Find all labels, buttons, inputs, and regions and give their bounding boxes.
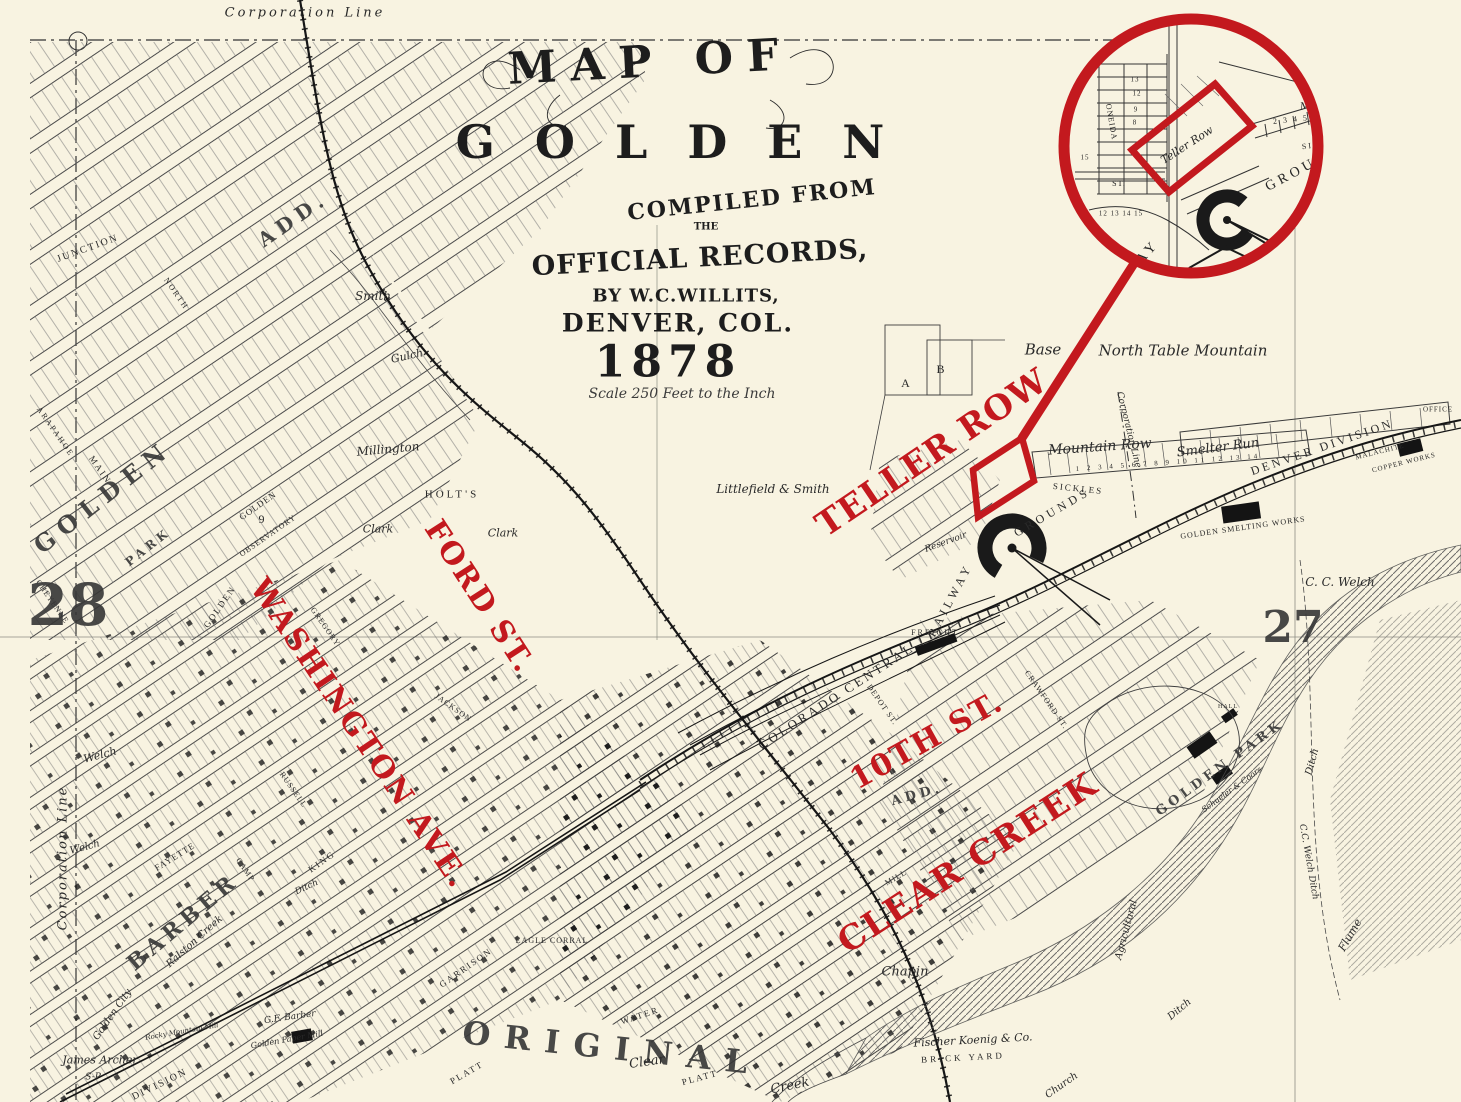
map-label: DENVER DIVISION bbox=[1249, 417, 1395, 477]
map-label: ORIGINAL bbox=[461, 1016, 763, 1079]
map-label: OBSERVATORY bbox=[238, 514, 297, 559]
map-label: SICKLES bbox=[1052, 482, 1103, 496]
inset-label: ST. bbox=[1112, 180, 1126, 188]
map-label: FAYETTE bbox=[153, 841, 196, 873]
map-label: GROUNDS bbox=[1012, 485, 1092, 538]
map-label: ADD. bbox=[254, 188, 331, 251]
map-label: Schueler & Coors bbox=[1201, 766, 1264, 815]
title-the: THE bbox=[694, 222, 719, 233]
red-annotation-label: CLEAR CREEK bbox=[832, 766, 1104, 959]
map-label: Smith bbox=[355, 290, 391, 302]
inset-label: 8 bbox=[1133, 120, 1138, 127]
map-label: PARK bbox=[123, 526, 173, 569]
map-label: GOLDEN PARK bbox=[1154, 717, 1286, 818]
map-label: G.F. Barber bbox=[264, 1010, 317, 1026]
map-label: Mountain Row bbox=[1048, 436, 1152, 457]
map-label: BRICK YARD bbox=[921, 1051, 1005, 1064]
map-label: GOLDEN bbox=[202, 584, 237, 629]
map-label: ARAPAHOE bbox=[35, 406, 75, 459]
map-label: MAIN bbox=[87, 454, 113, 485]
map-label: GARRISON bbox=[438, 947, 494, 990]
inset-label: SICKLES bbox=[1301, 137, 1313, 151]
map-label: A bbox=[901, 377, 911, 389]
map-label: KING bbox=[307, 850, 337, 875]
map-label: Base bbox=[1025, 343, 1062, 358]
magnifier-inset: Teller RowONEIDAST.RAILWAYGROUNDSSICKLES… bbox=[1069, 24, 1313, 268]
map-label: Fischer Koenig & Co. bbox=[913, 1031, 1033, 1048]
map-label: Millington bbox=[356, 440, 420, 457]
map-label: CHEYENNE bbox=[34, 579, 70, 625]
inset-label: Teller Row bbox=[1159, 124, 1215, 166]
map-label: Golden City bbox=[92, 988, 134, 1043]
title-records: OFFICIAL RECORDS, bbox=[531, 234, 869, 283]
map-label: Flume bbox=[1336, 917, 1363, 953]
map-label: Corporation Line bbox=[57, 786, 70, 931]
map-label: MALACHITE bbox=[1355, 443, 1405, 462]
map-label: Church bbox=[1044, 1071, 1080, 1101]
teller-row-highlight-box bbox=[973, 438, 1034, 517]
map-label: RAILWAY bbox=[926, 561, 975, 638]
map-label: Corporation Line bbox=[225, 7, 386, 20]
red-annotation-label: TELLER ROW bbox=[810, 363, 1054, 543]
map-label: FREIGHT bbox=[911, 629, 959, 637]
map-label: Ralston Creek bbox=[165, 914, 225, 970]
inset-label: 15 bbox=[1081, 155, 1090, 162]
map-label: Ditch bbox=[1305, 748, 1322, 777]
map-label: Smelter Run bbox=[1176, 436, 1260, 459]
map-label: GOLDEN SMELTING WORKS bbox=[1180, 515, 1306, 541]
map-label: Corporation Line bbox=[1114, 391, 1142, 469]
title-author: BY W.C.WILLITS, bbox=[592, 286, 779, 307]
map-label: Reservoir bbox=[924, 531, 968, 555]
map-label: COPPER WORKS bbox=[1371, 452, 1436, 475]
map-label: GOLDEN bbox=[238, 490, 278, 522]
map-label: Agricultural bbox=[1114, 899, 1140, 961]
inset-label: Mountain Row bbox=[1300, 95, 1313, 113]
map-label: Ditch bbox=[294, 879, 320, 898]
inset-labels-layer: Teller RowONEIDAST.RAILWAYGROUNDSSICKLES… bbox=[1069, 24, 1313, 268]
map-label: COLORADO CENTRAL bbox=[756, 641, 917, 752]
inset-label: RAILWAY bbox=[1092, 238, 1163, 268]
map-label: JACKSON bbox=[433, 692, 473, 723]
map-label: WATER bbox=[620, 1006, 661, 1027]
inset-label: 9 bbox=[1134, 107, 1139, 114]
title-place: DENVER, COL. bbox=[562, 309, 794, 338]
map-label: Golden Paper Mill bbox=[250, 1030, 323, 1051]
map-label: 28 bbox=[28, 576, 109, 634]
map-label: Chapin bbox=[882, 966, 929, 979]
map-label: ADD. bbox=[890, 782, 944, 808]
title-scale: Scale 250 Feet to the Inch bbox=[588, 386, 775, 402]
red-annotation-label: FORD ST. bbox=[419, 515, 540, 678]
map-label: NORTH bbox=[162, 277, 190, 312]
inset-label: 2 3 4 5 bbox=[1273, 114, 1310, 126]
map-label: GOLDEN bbox=[30, 436, 177, 558]
map-label: Creek bbox=[769, 1076, 810, 1097]
map-label: 1 2 3 4 5 6 7 8 9 10 11 12 13 14 bbox=[1075, 453, 1260, 473]
red-annotation-label: WASHINGTON AVE. bbox=[244, 574, 474, 894]
map-label: 27 bbox=[1262, 606, 1323, 650]
map-label: OFFICE bbox=[1423, 407, 1453, 414]
map-label: BARBER bbox=[123, 869, 243, 974]
map-label: MILL bbox=[884, 869, 908, 888]
inset-label: ONEIDA bbox=[1104, 103, 1118, 141]
title-year: 1878 bbox=[595, 337, 741, 388]
map-label: North Table Mountain bbox=[1099, 344, 1268, 359]
map-label: CRAWFORD ST. bbox=[1023, 669, 1069, 730]
map-label: Clark bbox=[488, 528, 518, 539]
map-label: RUSSELL bbox=[278, 771, 308, 810]
map-label: B bbox=[936, 363, 945, 375]
map-label: Ditch bbox=[1166, 997, 1193, 1022]
magnifier-leader-line bbox=[1022, 262, 1135, 438]
map-label: HOLT'S bbox=[425, 490, 479, 501]
map-label: S-P bbox=[85, 1074, 101, 1083]
map-label: DEPOT ST. bbox=[865, 683, 899, 726]
map-label: CAMP bbox=[234, 857, 256, 883]
map-label: HALL bbox=[1218, 704, 1238, 710]
title-map-of: MAP OF bbox=[506, 29, 793, 95]
map-label: C. C. Welch bbox=[1305, 576, 1375, 588]
map-label: Clear bbox=[628, 1053, 665, 1071]
inset-label: 12 bbox=[1133, 91, 1142, 98]
inset-label: 13 bbox=[1131, 77, 1140, 84]
map-label: 9 bbox=[259, 513, 266, 525]
map-label: Welch bbox=[69, 839, 101, 857]
map-label: Rocky Mountain Mill bbox=[145, 1022, 219, 1042]
map-label: C.C. Welch Ditch bbox=[1297, 823, 1319, 900]
map-label: Clark bbox=[363, 524, 393, 535]
map-label: PLATT bbox=[681, 1069, 719, 1087]
map-label: JUNCTION bbox=[56, 233, 120, 265]
map-label: PLATT bbox=[449, 1060, 486, 1086]
red-annotation-label: 10TH ST. bbox=[846, 687, 1009, 795]
map-label: Gulch bbox=[390, 347, 424, 365]
golden-1878-map: Corporation LineCorporation LineCorporat… bbox=[0, 0, 1461, 1102]
map-label: James Archer bbox=[62, 1055, 137, 1066]
inset-label: 12 13 14 15 bbox=[1099, 211, 1143, 218]
map-label: Welch bbox=[82, 745, 117, 764]
title-compiled: COMPILED FROM bbox=[626, 174, 878, 226]
map-label: GREGORY bbox=[309, 606, 341, 648]
map-label: Littlefield & Smith bbox=[716, 483, 829, 495]
map-label: EAGLE CORRAL bbox=[516, 937, 589, 945]
map-label: DIVISION bbox=[131, 1067, 190, 1102]
title-city: GOLDEN bbox=[456, 115, 925, 169]
